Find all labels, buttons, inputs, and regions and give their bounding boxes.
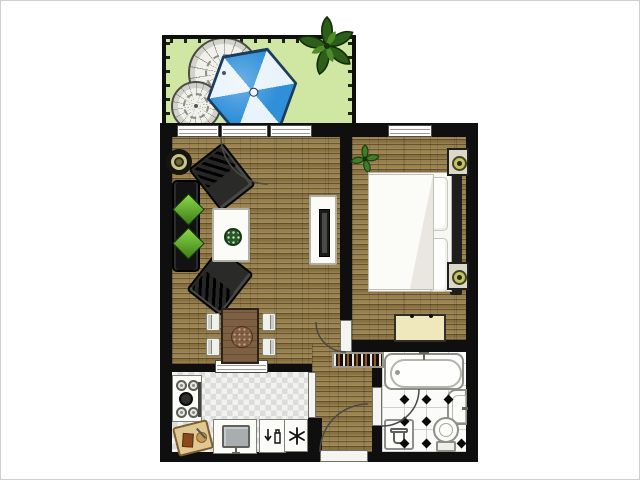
table-centerpiece — [232, 327, 252, 347]
dining-table — [221, 308, 259, 364]
stove — [172, 375, 202, 422]
food-item — [182, 433, 194, 448]
kitchen-door-jamb — [308, 372, 316, 418]
kitchen-hall-wall-stub — [308, 418, 322, 452]
shoe-rack — [332, 352, 384, 368]
nightstand-bottom — [447, 262, 469, 290]
toilet-tank — [436, 441, 456, 452]
snowflake-icon — [288, 427, 306, 445]
lamp-icon — [452, 270, 467, 285]
bedroom-door-frame — [340, 320, 352, 352]
bathtub-inner — [390, 359, 462, 388]
round-side-table — [166, 149, 192, 175]
dining-chair — [262, 338, 276, 356]
floor-plan-canvas — [0, 0, 640, 480]
bench-knob — [429, 314, 433, 318]
lamp-icon — [452, 156, 467, 171]
sofa — [172, 180, 200, 272]
toilet — [433, 417, 459, 443]
terrace-door-threshold — [221, 125, 268, 137]
sofa-cushion — [172, 227, 205, 260]
kitchen-sink — [213, 419, 257, 454]
dishwasher — [259, 419, 286, 453]
tv-screen — [319, 209, 330, 257]
bedroom-bench — [394, 314, 446, 342]
dining-chair — [206, 313, 220, 331]
bathtub — [384, 353, 464, 390]
faucet-icon — [232, 452, 240, 454]
terrace-railing-ticks-top — [170, 39, 348, 43]
coffee-table — [212, 208, 250, 262]
nightstand-top — [447, 148, 469, 176]
duvet-fold — [399, 175, 433, 289]
living-window-2 — [270, 125, 312, 137]
stove-handle — [198, 382, 201, 417]
sofa-cushion — [172, 193, 205, 226]
freezer — [284, 419, 308, 452]
bench-knob — [410, 314, 414, 318]
faucet-icon — [462, 407, 468, 410]
entry-door-threshold — [320, 450, 368, 462]
faucet-icon — [423, 353, 425, 360]
terrace-railing-ticks-left — [166, 42, 170, 120]
laundry-basket — [384, 419, 414, 450]
tv-cabinet — [309, 195, 337, 265]
dining-chair — [206, 338, 220, 356]
burner — [176, 407, 187, 418]
drain-icon — [395, 370, 400, 375]
bed-duvet — [368, 174, 434, 290]
faucet-icon — [419, 352, 429, 354]
dining-chair — [262, 313, 276, 331]
living-window-1 — [177, 125, 219, 137]
burner — [176, 380, 187, 391]
dishwasher-icon — [264, 427, 283, 446]
parasol-center — [248, 87, 258, 97]
pot-icon — [179, 392, 193, 406]
sink-basin — [222, 425, 250, 448]
bedroom-window — [388, 125, 432, 137]
bathroom-door-frame — [372, 387, 382, 426]
coffee-table-plant — [224, 228, 242, 246]
terrace-railing-ticks-right — [348, 42, 352, 120]
